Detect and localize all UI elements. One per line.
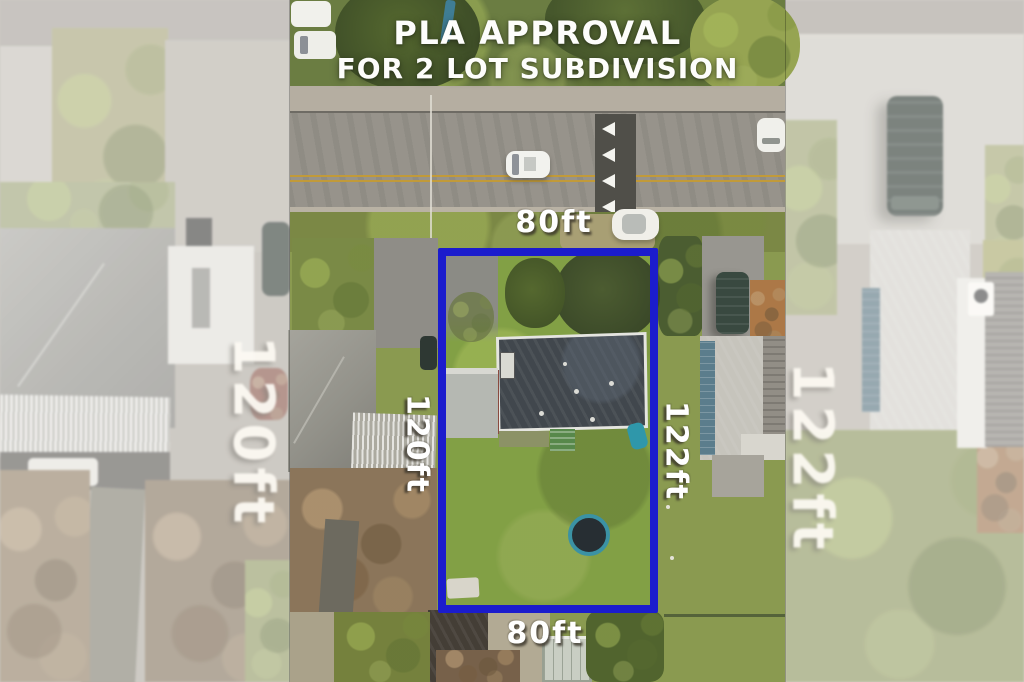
lane-arrow — [602, 122, 615, 136]
car-windshield — [512, 154, 519, 175]
garden-path — [319, 519, 359, 615]
front-width-label: 80ft — [515, 205, 592, 240]
title-line-1: PLA APPROVAL — [290, 14, 785, 52]
lane-arrow — [602, 148, 615, 162]
yellow-center-line — [290, 180, 785, 182]
lane-arrow — [602, 174, 615, 188]
right-depth-label: 122ft — [659, 401, 694, 501]
sidewalk — [290, 86, 785, 112]
utility-line — [430, 95, 432, 247]
car-at-edge — [757, 118, 785, 152]
fence-post-dot — [666, 505, 670, 509]
car-window-band — [622, 214, 646, 234]
hedge — [658, 236, 704, 336]
grass-patch — [292, 238, 374, 338]
suv-green — [716, 272, 749, 334]
title-line-2: FOR 2 LOT SUBDIVISION — [290, 52, 785, 85]
panel-seam — [289, 0, 290, 682]
left-background-panel: 120ft — [0, 0, 290, 682]
path-bottom — [290, 612, 334, 682]
wash-overlay — [0, 0, 290, 682]
lot-boundary-rectangle — [438, 248, 658, 613]
hedge-bottom — [586, 610, 664, 682]
fence-shadow-line — [664, 614, 785, 617]
yard-clutter — [436, 650, 520, 682]
solar-panel-strip — [700, 341, 715, 455]
car-windshield — [762, 138, 780, 144]
left-depth-label: 120ft — [400, 394, 435, 494]
panel-seam — [785, 0, 786, 682]
car-sunroof — [524, 157, 536, 171]
dark-car — [420, 336, 437, 370]
aerial-scene: 120ft 122ft — [0, 0, 1024, 682]
right-background-panel: 122ft — [785, 0, 1024, 682]
patio — [712, 455, 764, 497]
wash-overlay — [785, 0, 1024, 682]
driveway — [374, 238, 438, 348]
rear-width-label: 80ft — [506, 616, 583, 651]
bushes-bottom — [334, 612, 430, 682]
fence-post-dot — [670, 556, 674, 560]
